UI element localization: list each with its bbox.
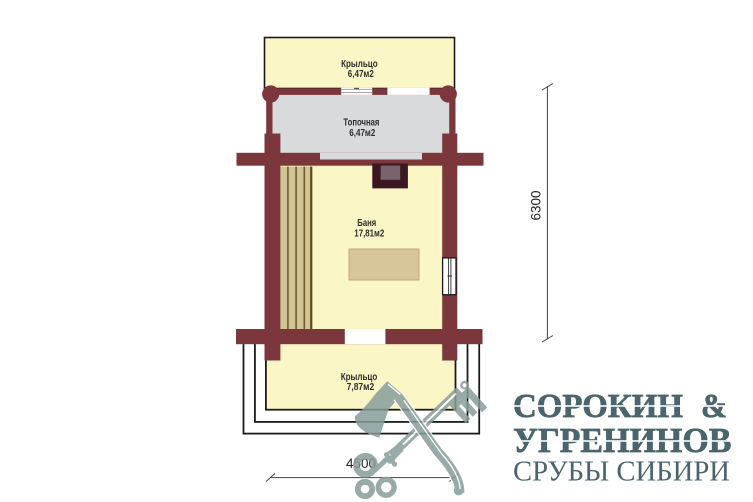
svg-text:Баня: Баня bbox=[357, 218, 376, 229]
svg-text:СРУБЫ СИБИРИ: СРУБЫ СИБИРИ bbox=[513, 457, 730, 488]
svg-text:Топочная: Топочная bbox=[343, 117, 379, 128]
svg-text:7,87м2: 7,87м2 bbox=[347, 382, 375, 393]
svg-text:6,47м2: 6,47м2 bbox=[348, 69, 374, 80]
svg-text:6300: 6300 bbox=[529, 190, 544, 220]
svg-text:6,47м2: 6,47м2 bbox=[349, 128, 375, 139]
svg-text:17,81м2: 17,81м2 bbox=[354, 228, 384, 239]
